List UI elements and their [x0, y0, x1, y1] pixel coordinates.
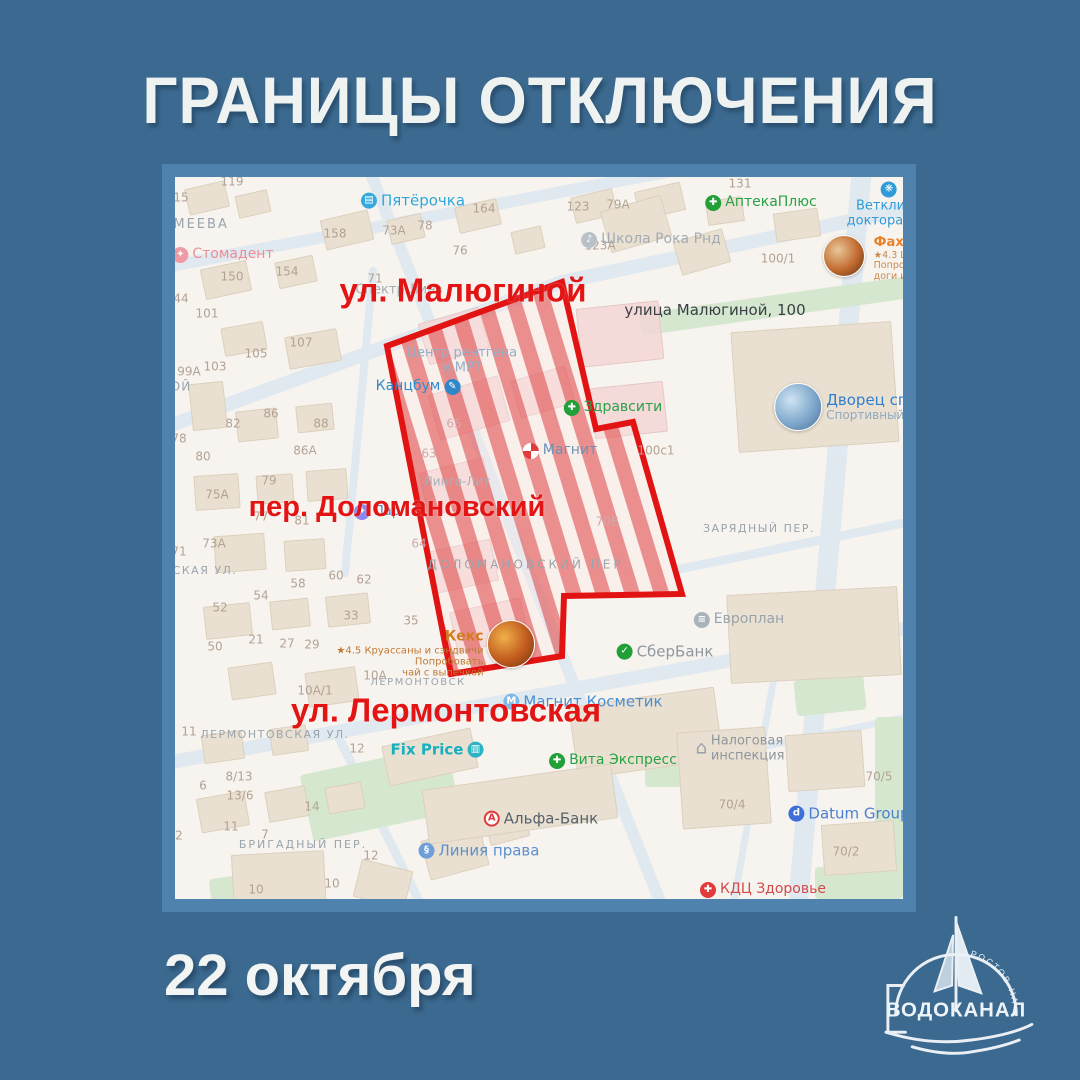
house-number: 13/6 — [227, 790, 254, 803]
poi-text-line: Альфа-Банк — [504, 811, 598, 828]
poi-datum-group: dDatum Group — [788, 806, 903, 823]
building — [265, 786, 310, 822]
house-number: 70/4 — [719, 799, 746, 812]
svg-text:РОСТОВ-НА-ДОНУ: РОСТОВ-НА-ДОНУ — [856, 896, 1020, 1010]
vetklinika-icon: ❋ — [881, 181, 897, 197]
house-number: 107 — [290, 337, 313, 350]
poi-text-line: Канцбум — [376, 379, 441, 395]
europlan-icon: ≡ — [694, 612, 710, 628]
house-number: 158 — [324, 228, 347, 241]
street-name-label: ОМЕЕВА — [175, 218, 229, 232]
poi-europlan: ≡Европлан — [694, 612, 784, 628]
outage-street-label: ул. Лермонтовская — [291, 694, 601, 729]
alfa-bank-icon: А — [484, 811, 500, 827]
house-number: 105 — [245, 348, 268, 361]
liniya-prava-icon: § — [419, 843, 435, 859]
building — [727, 587, 901, 684]
europlan-label: Европлан — [714, 612, 784, 628]
datum-group-icon: d — [788, 806, 804, 822]
poi-shkola-roka: ♪Школа Рока Рнд — [581, 232, 721, 248]
house-number: 164 — [473, 203, 496, 216]
logo-city-text: РОСТОВ-НА-ДОНУ — [856, 896, 1020, 1010]
house-number: 12 — [349, 743, 364, 756]
poi-lingo-lit: Линго-Лит — [424, 475, 490, 488]
outage-street-label: ул. Малюгиной — [339, 274, 586, 309]
house-number: 73А — [202, 538, 225, 551]
house-number: 131 — [729, 178, 752, 191]
house-number: 82 — [225, 418, 240, 431]
house-number: 86 — [263, 408, 278, 421]
fixprice-icon: ▥ — [467, 742, 483, 758]
page-title: ГРАНИЦЫ ОТКЛЮЧЕНИЯ — [32, 62, 1047, 138]
logo-sail-left — [935, 935, 953, 991]
poi-rentgen-centr: Центр рентгенаи МРТ — [407, 346, 517, 375]
building — [270, 598, 311, 630]
house-number: 54 — [253, 590, 268, 603]
house-number: 103 — [204, 361, 227, 374]
poi-text-line: АптекаПлюс — [725, 195, 817, 211]
poi-text-line: Линия права — [439, 843, 540, 860]
dvorec-sporta-label: Дворец спорСпортивный ком — [826, 392, 903, 422]
house-number: 52 — [212, 602, 227, 615]
house-number: 35 — [403, 615, 418, 628]
sberbank-label: СберБанк — [637, 644, 714, 661]
poi-text-line: инспекция — [711, 749, 785, 764]
poi-keks-text: Кекс★4.5 Круассаны и сэндвичиПопробовать… — [336, 629, 483, 678]
house-number: 29 — [304, 639, 319, 652]
poi-alfa-bank: ААльфа-Банк — [484, 811, 598, 828]
house-number: 12 — [363, 850, 378, 863]
zdravsiti-icon: ✚ — [564, 400, 580, 416]
poi-vita-express: ✚Вита Экспресс — [549, 753, 677, 769]
house-number: 7 — [261, 829, 269, 842]
magnit-label: Магнит — [543, 443, 597, 459]
nalogovaya-icon: ⌂ — [695, 740, 706, 759]
sberbank-icon: ✓ — [617, 644, 633, 660]
poi-text-line: Попробовать — [415, 656, 484, 667]
poi-sberbank: ✓СберБанк — [617, 644, 714, 661]
poi-text-line: Fix Price — [391, 742, 464, 759]
keks-text-label: Кекс★4.5 Круассаны и сэндвичиПопробовать… — [336, 629, 483, 678]
building — [228, 662, 276, 700]
logo-wave-1 — [886, 1024, 1032, 1041]
poi-text-line: Европлан — [714, 612, 784, 628]
poi-kdc-zdorovye: ✚КДЦ Здоровье — [700, 882, 826, 898]
poi-text-line: Стомадент — [192, 247, 273, 263]
house-number: 62 — [356, 574, 371, 587]
fixprice-label: Fix Price — [391, 742, 464, 759]
vita-express-label: Вита Экспресс — [569, 753, 677, 769]
house-number: 65 — [446, 418, 461, 431]
poi-text-line: чай с выпечкой — [402, 667, 483, 678]
poi-text-line: доги и ш — [874, 272, 903, 283]
house-number: 70Е — [596, 516, 619, 529]
street-name-label: СКАЯ УЛ. — [175, 565, 237, 577]
house-number: 86А — [293, 445, 316, 458]
house-number: 154 — [276, 266, 299, 279]
liniya-prava-label: Линия права — [439, 843, 540, 860]
vetklinika-label: Ветклинидоктора Зуб — [847, 199, 903, 228]
house-number: 119 — [221, 177, 244, 188]
house-number: 100с1 — [637, 445, 674, 458]
house-number: 78 — [175, 433, 187, 446]
poi-keks-photo — [487, 620, 535, 668]
house-number: 80 — [195, 451, 210, 464]
house-number: 10 — [248, 884, 263, 897]
house-number: 101 — [196, 308, 219, 321]
house-number: 50 — [207, 641, 222, 654]
street-name-label: ОЙ — [175, 381, 191, 394]
outage-street-label: пер. Доломановский — [249, 492, 546, 522]
house-number: 70/2 — [833, 846, 860, 859]
nalogovaya-label: Налоговаяинспекция — [711, 734, 785, 763]
poi-text-line: Здравсити — [584, 400, 662, 416]
poi-aptekaplus: ✚АптекаПлюс — [705, 195, 817, 211]
poi-stomadent: ✦Стомадент — [175, 247, 274, 263]
street-name-label: ЗАРЯДНЫЙ ПЕР. — [703, 523, 815, 535]
poi-fahita-text: Фахит★4.3 ШПопробдоги и ш — [874, 236, 903, 282]
poi-text-line: Дворец спор — [826, 392, 903, 409]
keks-photo-icon — [487, 620, 535, 668]
house-number: 100/1 — [761, 253, 796, 266]
poi-vetklinika: ❋Ветклинидоктора Зуб — [847, 181, 903, 228]
poi-nalogovaya: ⌂Налоговаяинспекция — [695, 734, 784, 763]
vodokanal-logo-art: РОСТОВ-НА-ДОНУ ВОДОКАНАЛ — [856, 896, 1056, 1076]
house-number: 44 — [175, 293, 189, 306]
aptekaplus-label: АптекаПлюс — [725, 195, 817, 211]
poi-liniya-prava: §Линия права — [419, 843, 540, 860]
fahita-text-label: Фахит★4.3 ШПопробдоги и ш — [874, 236, 903, 282]
poi-text-line: Центр рентгена — [407, 346, 517, 361]
kdc-zdorovye-icon: ✚ — [700, 882, 716, 898]
house-number: 79 — [261, 475, 276, 488]
street-name-label: ЛЕРМОНТОВСКАЯ УЛ. — [200, 729, 349, 741]
poi-text-line: Магнит — [543, 443, 597, 459]
poi-text-line: СберБанк — [637, 644, 714, 661]
logo-org-text: ВОДОКАНАЛ — [886, 1000, 1026, 1022]
map: ОМЕЕВАОЙСКАЯ УЛ.ЗАРЯДНЫЙ ПЕР.ДОЛОМАНОВСК… — [175, 177, 903, 899]
house-number: 78 — [417, 220, 432, 233]
map-frame: ОМЕЕВАОЙСКАЯ УЛ.ЗАРЯДНЫЙ ПЕР.ДОЛОМАНОВСК… — [162, 164, 916, 912]
poi-magnit: Магнит — [523, 443, 597, 459]
house-number: 2 — [175, 830, 183, 843]
poi-text-line: Школа Рока Рнд — [601, 232, 721, 248]
house-number: 63 — [421, 448, 436, 461]
kancbum-label: Канцбум — [376, 379, 441, 395]
house-number: 11 — [223, 821, 238, 834]
dvorec-sporta-icon — [774, 383, 822, 431]
house-number: 8/13 — [226, 771, 253, 784]
poi-text-line: КДЦ Здоровье — [720, 882, 826, 898]
house-number: 70/5 — [866, 771, 893, 784]
house-number: 75А — [205, 489, 228, 502]
poster: ГРАНИЦЫ ОТКЛЮЧЕНИЯ ОМЕЕВАОЙСКАЯ УЛ.ЗАРЯД… — [0, 0, 1080, 1080]
address-label: улица Малюгиной, 100 — [624, 303, 805, 319]
poi-text-line: Фахит — [874, 236, 903, 251]
datum-group-label: Datum Group — [808, 806, 903, 823]
shkola-roka-icon: ♪ — [581, 232, 597, 248]
poi-text-line: Налоговая — [711, 734, 783, 749]
magnit-icon — [523, 443, 539, 459]
house-number: 21 — [248, 634, 263, 647]
vodokanal-logo: РОСТОВ-НА-ДОНУ ВОДОКАНАЛ — [856, 896, 1056, 1076]
poi-fixprice: Fix Price▥ — [391, 742, 484, 759]
poi-text-line: Линго-Лит — [424, 475, 490, 488]
poi-text-line: Ветклини — [856, 199, 903, 214]
house-number: 14 — [304, 801, 319, 814]
road — [345, 271, 373, 573]
street-name-label: ДОЛОМАНОВСКИЙ ПЕР. — [428, 559, 631, 572]
poi-text-line: Спортивный ком — [826, 409, 903, 422]
alfa-bank-label: Альфа-Банк — [504, 811, 598, 828]
poi-dvorec-sporta: Дворец спорСпортивный ком — [774, 383, 903, 431]
poi-kancbum: Канцбум✎ — [376, 379, 461, 395]
pyaterochka-label: Пятёрочка — [381, 193, 465, 210]
building — [235, 190, 271, 219]
outage-date: 22 октября — [164, 942, 476, 1009]
poi-fahita-photo — [823, 235, 865, 277]
house-number: 99А — [177, 366, 200, 379]
house-number: 150 — [221, 271, 244, 284]
house-number: 60 — [328, 570, 343, 583]
house-number: 71 — [175, 546, 187, 559]
house-number: 88 — [313, 418, 328, 431]
shkola-roka-label: Школа Рока Рнд — [601, 232, 721, 248]
house-number: 27 — [279, 638, 294, 651]
house-number: 11 — [181, 726, 196, 739]
fahita-photo-icon — [823, 235, 865, 277]
poi-text-line: Кекс — [445, 629, 484, 645]
house-number: 6 — [199, 780, 207, 793]
rentgen-centr-label: Центр рентгенаи МРТ — [407, 346, 517, 375]
stomadent-icon: ✦ — [175, 247, 188, 263]
poi-text-line: доктора Зуб — [847, 214, 903, 229]
building — [231, 851, 326, 899]
building — [511, 226, 545, 254]
house-number: 123 — [567, 201, 590, 214]
aptekaplus-icon: ✚ — [705, 195, 721, 211]
house-number: 33 — [343, 610, 358, 623]
poi-zdravsiti: ✚Здравсити — [564, 400, 662, 416]
poi-text-line: Datum Group — [808, 806, 903, 823]
poi-pyaterochka: ▤Пятёрочка — [361, 193, 465, 210]
kdc-zdorovye-label: КДЦ Здоровье — [720, 882, 826, 898]
building — [785, 730, 865, 791]
house-number: 58 — [290, 578, 305, 591]
kancbum-icon: ✎ — [444, 379, 460, 395]
building — [773, 208, 820, 242]
house-number: 15 — [175, 192, 189, 205]
street-name-label: БРИГАДНЫЙ ПЕР. — [239, 839, 367, 851]
poi-text-line: ★4.5 Круассаны и сэндвичи — [336, 645, 483, 656]
house-number: 76 — [452, 245, 467, 258]
stomadent-label: Стомадент — [192, 247, 273, 263]
house-number: 79А — [606, 199, 629, 212]
poi-text-line: Пятёрочка — [381, 193, 465, 210]
vita-express-icon: ✚ — [549, 753, 565, 769]
poi-text-line: и МРТ — [442, 361, 482, 376]
pyaterochka-icon: ▤ — [361, 193, 377, 209]
building — [325, 782, 365, 814]
house-number: 73А — [382, 225, 405, 238]
lingo-lit-label: Линго-Лит — [424, 475, 490, 488]
building — [284, 539, 326, 572]
house-number: 64 — [411, 538, 426, 551]
house-number: 10 — [324, 878, 339, 891]
poi-text-line: Вита Экспресс — [569, 753, 677, 769]
building — [203, 603, 252, 640]
zdravsiti-label: Здравсити — [584, 400, 662, 416]
building — [189, 381, 228, 430]
